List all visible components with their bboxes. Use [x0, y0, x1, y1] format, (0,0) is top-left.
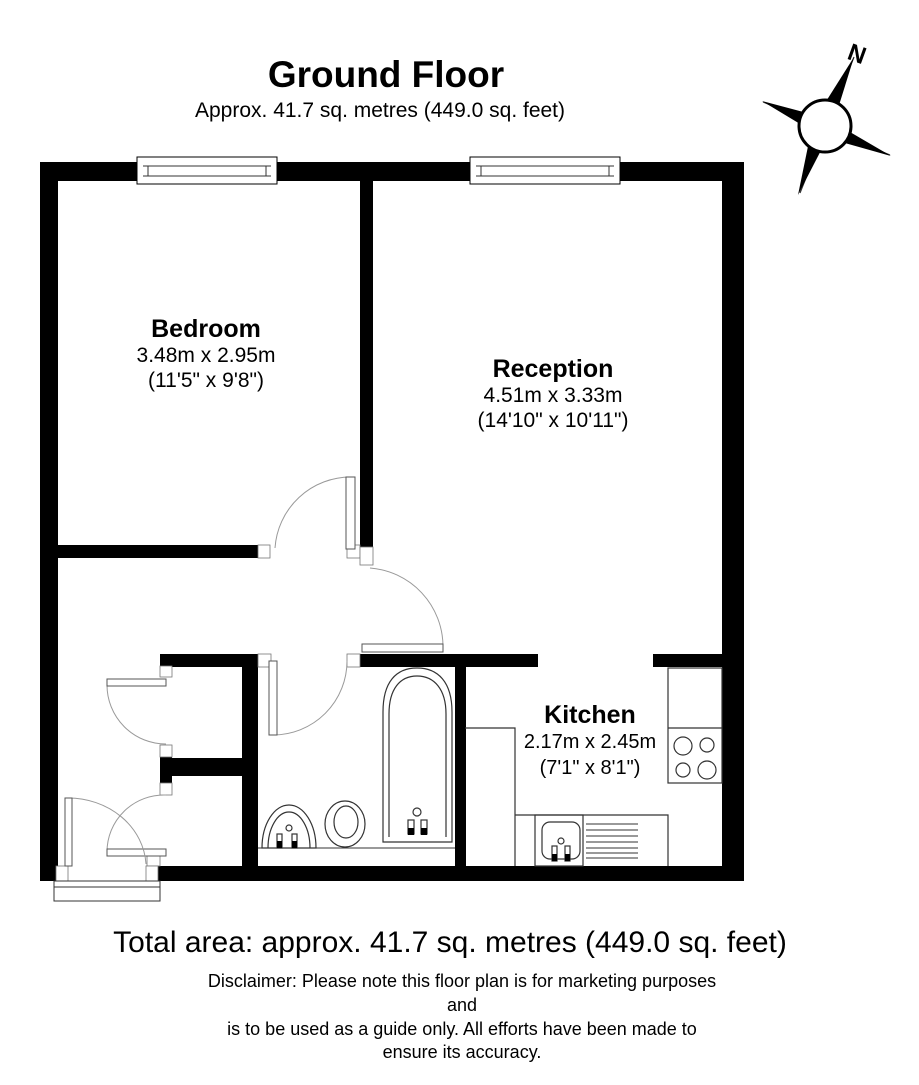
wall-bottom-left-stub — [40, 866, 58, 881]
room-name: Kitchen — [544, 701, 636, 729]
door-leaf — [107, 679, 166, 686]
sink-bowl — [542, 822, 580, 859]
room-name: Reception — [493, 355, 614, 383]
room-dim-metric: 3.48m x 2.95m — [137, 344, 276, 367]
bedroom-window — [137, 157, 277, 184]
jamb — [347, 654, 360, 667]
door-leaf — [107, 849, 166, 856]
window-frame — [137, 157, 277, 184]
wall-right — [722, 162, 744, 881]
wall-closet-divider-stub — [160, 757, 172, 783]
door-leaf — [346, 477, 355, 549]
door-leaf — [269, 661, 277, 735]
room-dim-metric: 4.51m x 3.33m — [484, 384, 623, 407]
hob — [674, 737, 716, 779]
jamb — [160, 666, 172, 677]
hob-burner — [700, 738, 714, 752]
kitchen-label: Kitchen 2.17m x 2.45m (7'1" x 8'1") — [524, 701, 656, 779]
door-swing-arc — [107, 685, 166, 744]
jamb — [146, 866, 158, 881]
bedroom-label: Bedroom 3.48m x 2.95m (11'5" x 9'8") — [137, 315, 276, 392]
bathroom-door — [269, 661, 347, 735]
window-frame — [470, 157, 620, 184]
total-area-text: Total area: approx. 41.7 sq. metres (449… — [113, 926, 787, 959]
disclaimer-line: and — [447, 995, 477, 1015]
door-swing-arc — [107, 795, 166, 852]
porch-step — [54, 881, 160, 901]
wall-bedroom-reception-divider — [360, 181, 373, 547]
hob-burner — [698, 761, 716, 779]
sink-tap-foot — [565, 854, 570, 861]
disclaimer-line: is to be used as a guide only. All effor… — [227, 1019, 697, 1039]
bathtub-tap-foot — [421, 828, 427, 835]
page-subtitle: Approx. 41.7 sq. metres (449.0 sq. feet) — [195, 99, 565, 122]
kitchen-counter-right — [668, 668, 722, 783]
door-swing-arc — [370, 568, 443, 646]
jamb — [360, 547, 373, 565]
jamb — [56, 866, 68, 881]
disclaimer-line: ensure its accuracy. — [383, 1042, 542, 1062]
compass-icon: N — [762, 39, 891, 195]
bedroom-door — [275, 477, 355, 549]
page-title: Ground Floor — [268, 54, 504, 95]
jamb — [258, 545, 270, 558]
floorplan-page: Ground Floor Approx. 41.7 sq. metres (44… — [0, 0, 919, 1080]
basin-tap-foot — [277, 841, 282, 848]
disclaimer: Disclaimer: Please note this floor plan … — [208, 971, 716, 1062]
door-leaf — [65, 798, 72, 866]
wall-top-middle — [277, 162, 470, 181]
wall-bathroom-kitchen-top — [360, 654, 538, 667]
draining-board — [586, 824, 638, 858]
reception-label: Reception 4.51m x 3.33m (14'10" x 10'11"… — [478, 355, 629, 432]
reception-door — [362, 568, 443, 652]
wall-bedroom-bottom — [58, 545, 258, 558]
bathtub-tap-foot — [408, 828, 414, 835]
kitchen-sink — [542, 822, 580, 861]
kitchen-counter-left — [465, 728, 515, 866]
basin-tap-foot — [292, 841, 297, 848]
room-dim-metric: 2.17m x 2.45m — [524, 731, 656, 753]
bathtub — [383, 668, 452, 842]
disclaimer-line: Disclaimer: Please note this floor plan … — [208, 971, 716, 991]
door-leaf — [362, 644, 443, 652]
wall-bottom — [158, 866, 744, 881]
hob-burner — [674, 737, 692, 755]
north-label: N — [844, 39, 870, 70]
entrance-porch — [54, 881, 160, 901]
wall-left — [40, 162, 58, 881]
wall-kitchen-top-right — [653, 654, 722, 667]
sink-tap-foot — [552, 854, 557, 861]
wall-bathroom-left — [242, 654, 258, 866]
toilet — [325, 801, 365, 847]
wall-bathroom-right — [455, 667, 466, 866]
door-swing-arc — [275, 477, 351, 548]
jamb — [160, 783, 172, 795]
room-dim-imperial: (7'1" x 8'1") — [540, 757, 641, 779]
room-name: Bedroom — [151, 315, 261, 343]
jamb — [160, 745, 172, 757]
room-dim-imperial: (14'10" x 10'11") — [478, 409, 629, 432]
room-dim-imperial: (11'5" x 9'8") — [148, 369, 264, 392]
door-swing-arc — [273, 661, 347, 735]
basin — [262, 805, 316, 848]
toilet-outer — [325, 801, 365, 847]
closet-lower-door — [107, 795, 166, 856]
bathroom-fixtures — [258, 668, 455, 848]
floorplan-drawing: Ground Floor Approx. 41.7 sq. metres (44… — [0, 0, 919, 1080]
hob-burner — [676, 763, 690, 777]
compass-hub — [799, 100, 851, 152]
closet-upper-door — [107, 679, 166, 744]
reception-window — [470, 157, 620, 184]
wall-closet-divider — [172, 758, 242, 776]
